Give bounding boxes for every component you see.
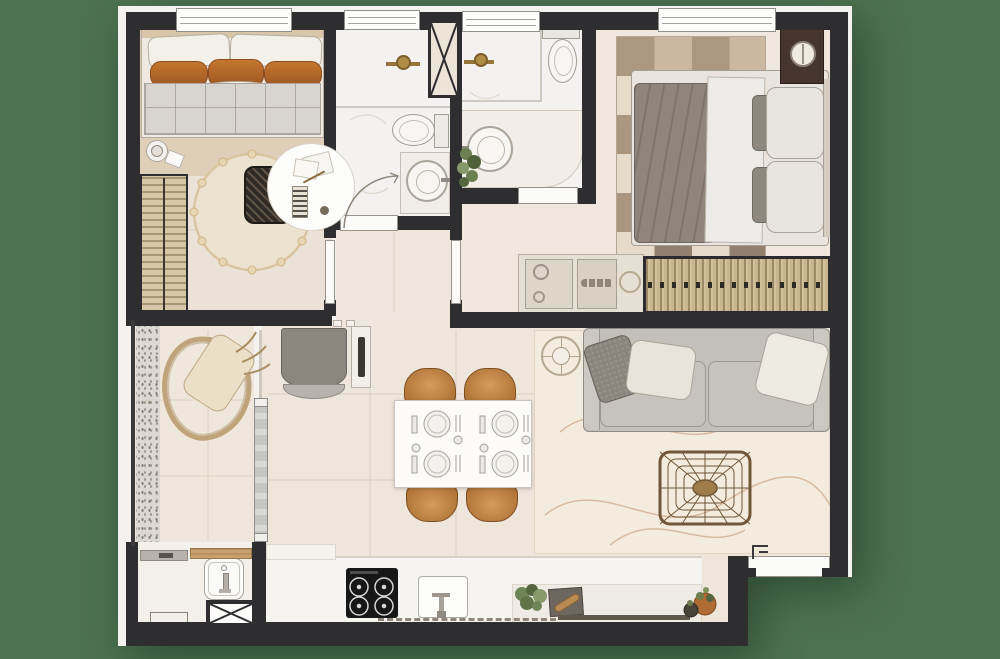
wall-bath2-right: [582, 18, 596, 204]
tank-tap-mount: [221, 565, 227, 571]
dresser-flower: [619, 271, 641, 293]
door-bathroom1-opening: [340, 215, 398, 231]
cooktop: [346, 568, 398, 618]
vanity2-basin: [467, 126, 513, 172]
wardrobe-rod-hangers: [648, 282, 826, 288]
dresser-master: [518, 254, 644, 314]
plan-shadow: [0, 0, 1000, 659]
service-gray-shelf: [140, 550, 188, 561]
entry-door-jamb-left: [748, 568, 756, 577]
shower2-glass-horizontal: [460, 100, 542, 102]
round-lamp: [790, 41, 816, 67]
shower2-brass-valve: [474, 53, 488, 67]
entry-door: [748, 556, 830, 577]
hallway-floor: [336, 222, 452, 334]
window-master: [658, 8, 776, 32]
kitchen-counter-return: [266, 544, 336, 560]
window-bathroom2: [462, 11, 540, 32]
dining-table: [394, 400, 532, 488]
window-bedroom1: [176, 8, 292, 32]
dining-chair-bottom-right: [466, 484, 518, 522]
wardrobe-bedroom1: [140, 174, 188, 314]
wardrobe-master: [643, 256, 831, 314]
wall-service-left: [126, 542, 138, 628]
pillow-white-bottom: [766, 161, 824, 233]
window-bathroom1: [344, 10, 420, 30]
upper-cabinet-dashed-line: [378, 618, 556, 621]
door-bathroom2-opening: [518, 187, 578, 204]
sliding-glass-door: [254, 398, 268, 542]
shower1-brass-valve: [396, 55, 411, 70]
duct-shaft-top: [428, 20, 460, 98]
wardrobe-rod: [163, 178, 165, 310]
wall-master-bottom: [450, 312, 840, 328]
counter-ledge-bar: [558, 615, 690, 620]
cutting-board: [548, 587, 584, 617]
bed-double: [631, 70, 829, 246]
wall-entry-vertical: [728, 556, 748, 628]
pillow-white-top: [766, 87, 824, 159]
wall-cabinet-sq-2: [346, 320, 355, 327]
kitchen-sink: [418, 576, 468, 618]
wood-plank: [190, 548, 252, 559]
sink-faucet-base: [437, 611, 446, 618]
dresser-knob-row: [581, 279, 613, 287]
sofa: [583, 328, 830, 432]
toilet1-tank: [434, 114, 449, 148]
round-side-table: [541, 336, 581, 376]
shower1-divider-line: [336, 106, 452, 108]
toilet1-bowl: [392, 114, 435, 146]
laundry-tank: [204, 558, 244, 600]
tv-console-gray: [281, 328, 347, 388]
keyboard-object: [292, 186, 308, 218]
tv-screen: [358, 337, 365, 377]
wall-bedroom1-bottom: [126, 310, 332, 326]
baguette: [553, 592, 581, 614]
dining-chair-bottom-left: [406, 484, 458, 522]
dresser-small-items: [533, 291, 545, 303]
duvet-taupe: [634, 83, 712, 243]
nightstand-dark: [780, 26, 824, 84]
wall-right: [830, 12, 848, 577]
table-lamp: [151, 145, 163, 157]
balcony-railing: [131, 320, 135, 546]
apartment-plan: [0, 0, 1000, 659]
bed-single: [141, 28, 324, 138]
door-master-leaf: [451, 240, 461, 304]
quilted-blanket: [144, 83, 321, 135]
floor-plan-scene: [0, 0, 1000, 659]
desk-vase: [320, 206, 329, 215]
dresser-plates: [533, 264, 549, 280]
wall-cabinet-sq-1: [333, 320, 342, 327]
entry-door-jamb-right: [822, 568, 830, 577]
toilet2-bowl: [548, 39, 577, 83]
sofa-pillow-cream: [625, 339, 698, 402]
balcony-pebble-strip: [136, 322, 160, 542]
wall-left: [126, 12, 140, 320]
desk-detail-circle: [267, 143, 355, 231]
duct-shaft-service: [206, 600, 256, 627]
door-bedroom1-leaf: [325, 240, 335, 304]
tv-panel-shelf: [351, 326, 371, 388]
